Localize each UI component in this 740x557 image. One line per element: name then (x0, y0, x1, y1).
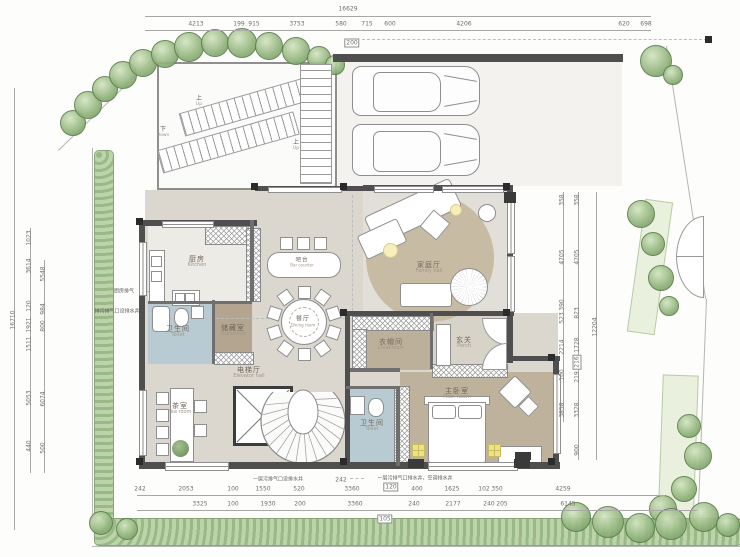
dim-label: 219 (574, 371, 581, 382)
column (251, 183, 258, 190)
dim-label: 1511 (26, 336, 33, 351)
washbasin (191, 306, 204, 319)
dim-label: 500 (40, 442, 47, 453)
dim-label: 358 (559, 194, 566, 205)
interior-wall (250, 220, 254, 302)
tree (625, 513, 655, 543)
storeroom-shelf (214, 352, 254, 365)
label-en: Bar counter (290, 264, 314, 269)
tree (255, 32, 283, 60)
stair-up-zh: 上 (196, 95, 202, 102)
dim-label: 216 (573, 354, 582, 369)
room-label-toilet1: 卫生间 Toilet (166, 325, 190, 339)
room-label-storeroom: 储藏室 Storeroom (220, 324, 246, 338)
hedge-left (94, 150, 114, 522)
dim-line-bottom (137, 495, 665, 496)
boundary-left (92, 148, 93, 520)
column (548, 354, 555, 361)
garage-top-wall (333, 54, 623, 62)
stair-up-zh: 上 (293, 139, 299, 146)
room-label-tea: 茶室 Tea room (169, 402, 192, 416)
dark-block (514, 459, 530, 468)
dark-block (408, 459, 424, 468)
room-label-dining: 餐厅 Dining room (291, 316, 316, 327)
room-label-elevator: 电梯厅 Elevator hall (233, 366, 264, 380)
dim-label: 105 (377, 515, 392, 524)
dim-label: 5053 (26, 390, 33, 405)
tree (116, 518, 138, 540)
dim-label: 3753 (289, 21, 304, 28)
stair-label-down: 下 Down (157, 127, 170, 139)
dim-label: 440 (26, 440, 33, 451)
tree (227, 28, 257, 58)
room-label-kitchen: 厨房 Kitchen (188, 255, 207, 269)
window (268, 187, 342, 193)
tree (648, 265, 674, 291)
window (165, 462, 229, 471)
tree (684, 442, 712, 470)
tree (659, 296, 679, 316)
chair (156, 426, 169, 439)
dim-label: 358 (574, 194, 581, 205)
boundary-right-lower (697, 299, 707, 533)
stair-up-en: Up (196, 103, 202, 108)
car-windshield-line (444, 133, 476, 140)
label-en: Toilet (360, 427, 384, 433)
gate-door-leaf (676, 256, 704, 298)
dim-label: 523 (559, 312, 566, 323)
dim-label: 600 (384, 21, 395, 28)
label-en: Cloakroom (378, 346, 405, 352)
dim-label: 1625 (444, 486, 459, 493)
dim-label: 16629 (338, 6, 357, 13)
dim-label: 698 (640, 21, 651, 28)
window (139, 390, 147, 456)
dim-label: 3328 (574, 402, 581, 417)
dim-label: 200 (344, 39, 359, 48)
label-en: Dining room (291, 323, 316, 328)
room-label-porch: 玄关 Porch (456, 336, 472, 350)
note-drain-mid: 一层污排气口设排水井 (253, 476, 303, 483)
dim-line-bottom (137, 510, 697, 511)
dim-label: 1550 (255, 486, 270, 493)
chair (156, 443, 169, 456)
wc (368, 398, 384, 417)
chair (156, 392, 169, 405)
dim-label: 5548 (40, 266, 47, 281)
dim-label: 2214 (559, 339, 566, 354)
dim-label: 4213 (188, 21, 203, 28)
note-kitchen-vent: 厨房排气 (114, 288, 134, 295)
label-en: Mstr. Room (443, 395, 471, 401)
interior-wall (148, 301, 252, 304)
note-leader (350, 478, 364, 479)
stair-down-en: Down (157, 134, 170, 139)
dim-label: 3360 (347, 501, 362, 508)
floor-plan: 下 Down 上 Up 上 Up (0, 0, 740, 557)
washbasin (350, 396, 365, 415)
door-leaf-dark (504, 192, 516, 203)
column (340, 309, 347, 316)
column (548, 458, 555, 465)
stair-label-up: 上 Up (293, 140, 299, 152)
dim-label: 199 (233, 21, 244, 28)
window (507, 256, 515, 312)
dim-label: 6145 (560, 501, 575, 508)
tree (677, 414, 701, 438)
dim-label: 2177 (445, 501, 460, 508)
dim-label: 120 (383, 483, 398, 492)
dining-chair (298, 348, 311, 361)
dim-label: 242 (335, 477, 346, 484)
interior-wall (396, 386, 400, 466)
wall (345, 311, 350, 467)
column (136, 218, 143, 225)
dim-label: 16710 (10, 310, 17, 329)
dim-label: 240 (483, 501, 494, 508)
label-en: Storeroom (220, 332, 246, 338)
sink (151, 256, 162, 267)
circulation-dashed-line (352, 195, 353, 311)
boundary-top-dashed (362, 39, 707, 40)
dim-label: 4206 (456, 21, 471, 28)
stair-label-up: 上 Up (196, 96, 202, 108)
note-drain-right: 一层污排气口排水井，空调排水井 (377, 475, 452, 482)
room-label-bar: 吧台 Bar counter (290, 258, 314, 269)
dim-label: 200 (294, 501, 305, 508)
bar-stool (280, 237, 293, 250)
boundary-corner-marker (705, 36, 712, 43)
dim-label: 520 (293, 486, 304, 493)
car-cabin (373, 131, 441, 172)
dim-label: 350 (491, 486, 502, 493)
column (136, 458, 143, 465)
bedside-lamp (488, 444, 501, 457)
interior-wall (346, 386, 398, 389)
tree (627, 200, 655, 228)
label-en: Elevator hall (233, 374, 264, 380)
pillow (458, 405, 482, 419)
dim-label: 4259 (555, 486, 570, 493)
dim-label: 1930 (260, 501, 275, 508)
dim-label: 100 (227, 486, 238, 493)
note-drain-left: 排污排气口设排水井 (94, 308, 139, 315)
tree (641, 232, 665, 256)
chair (156, 409, 169, 422)
wardrobe (352, 329, 367, 372)
spiral-ottoman (450, 268, 488, 306)
dim-label: 1921 (26, 317, 33, 332)
boundary-bottom (92, 546, 740, 547)
dim-label: 3325 (192, 501, 207, 508)
bedside-lamp (412, 444, 425, 457)
dim-label: 240 (408, 501, 419, 508)
floor-lamp (450, 204, 462, 216)
label-en: Porch (456, 344, 472, 350)
dim-label: 120 (26, 300, 33, 311)
dim-label: 12204 (592, 317, 599, 336)
dim-label: 915 (248, 21, 259, 28)
room-label-cloakroom: 衣帽间 Cloakroom (378, 338, 405, 352)
label-en: Tea room (169, 410, 192, 416)
tree (689, 502, 719, 532)
dim-label: 823 (574, 307, 581, 318)
pouf (400, 283, 452, 307)
car (352, 124, 480, 176)
car-windshield-line (444, 159, 476, 166)
room-label-master: 主卧室 Mstr. Room (443, 387, 471, 401)
dim-label: 100 (227, 501, 238, 508)
dim-line-top (145, 30, 651, 31)
dim-label: 400 (411, 486, 422, 493)
dim-line-left (14, 88, 15, 530)
label-en: Kitchen (188, 263, 207, 269)
dim-label: 715 (361, 21, 372, 28)
dim-label: 1023 (26, 230, 33, 245)
dim-line-left (44, 260, 45, 473)
hob (151, 271, 162, 282)
chair (194, 424, 207, 437)
dim-label: 6074 (40, 391, 47, 406)
stair-up-en: Up (293, 147, 299, 152)
stair-landing (300, 64, 332, 184)
window (374, 186, 434, 193)
room-label-toilet2: 卫生间 Toilet (360, 419, 384, 433)
dim-label: 3614 (26, 258, 33, 273)
car-cabin (373, 72, 441, 111)
car (352, 66, 480, 116)
gate-door-leaf (676, 216, 704, 258)
window (139, 242, 147, 296)
label-en: Toilet (166, 333, 190, 339)
chair (194, 400, 207, 413)
column (340, 183, 347, 190)
tree (655, 508, 687, 540)
window (507, 198, 515, 254)
dim-label: 1728 (574, 337, 581, 352)
window (162, 221, 214, 228)
window (442, 186, 504, 193)
column (340, 458, 347, 465)
dim-label: 3858 (559, 402, 566, 417)
dim-line-right (578, 192, 579, 460)
bar-stool (297, 237, 310, 250)
tree (89, 511, 113, 535)
window (428, 462, 518, 471)
floor-lamp (383, 243, 398, 258)
dim-label: 4705 (574, 249, 581, 264)
dim-label: 205 (496, 501, 507, 508)
tree (671, 476, 697, 502)
spiral-stair (257, 378, 349, 470)
car-windshield-line (444, 75, 476, 82)
dim-label: 620 (618, 21, 629, 28)
room-label-family: 家庭厅 Family hall (416, 261, 443, 275)
label-en: Family hall (416, 269, 443, 275)
bar-stool (314, 237, 327, 250)
stair-down-zh: 下 (160, 126, 166, 133)
dim-line-top (145, 16, 651, 17)
tree (201, 29, 229, 57)
porch-bench (436, 324, 451, 366)
tree (282, 37, 310, 65)
dim-label: 102 (478, 486, 489, 493)
dim-label: 390 (559, 299, 566, 310)
dining-chair (298, 286, 311, 299)
car-windshield-line (444, 100, 476, 107)
interior-wall (350, 368, 400, 372)
potted-plant (172, 440, 189, 457)
tree (716, 513, 740, 537)
dim-label: 2053 (178, 486, 193, 493)
interior-wall (430, 313, 433, 369)
column (503, 183, 510, 190)
dim-label: 580 (335, 21, 346, 28)
dim-label: 900 (574, 444, 581, 455)
tree (663, 65, 683, 85)
dim-label: 242 (134, 486, 145, 493)
dim-label: 984 (40, 303, 47, 314)
dim-label: 4705 (559, 249, 566, 264)
column (503, 309, 510, 316)
dim-label: 100 (559, 369, 566, 380)
side-table (478, 204, 496, 222)
interior-wall (212, 300, 215, 364)
tree (174, 32, 204, 62)
dim-label: 800 (40, 320, 47, 331)
pillow (432, 405, 456, 419)
dim-label: 3360 (344, 486, 359, 493)
